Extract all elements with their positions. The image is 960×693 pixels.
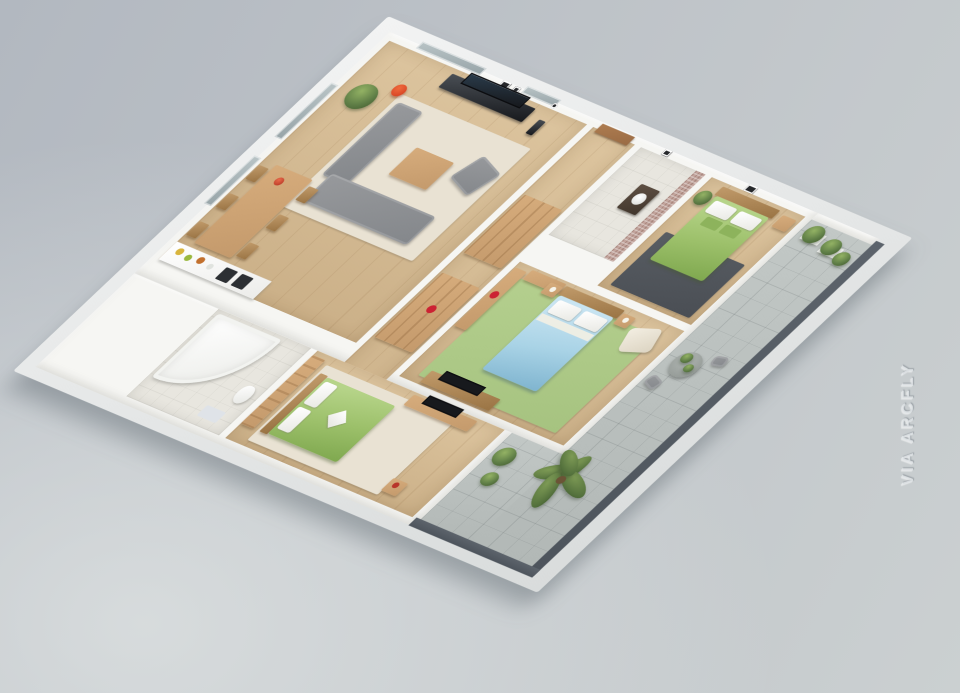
- watermark-text: VIA ARCFLY: [900, 362, 918, 485]
- floor-plan-model: [27, 26, 910, 589]
